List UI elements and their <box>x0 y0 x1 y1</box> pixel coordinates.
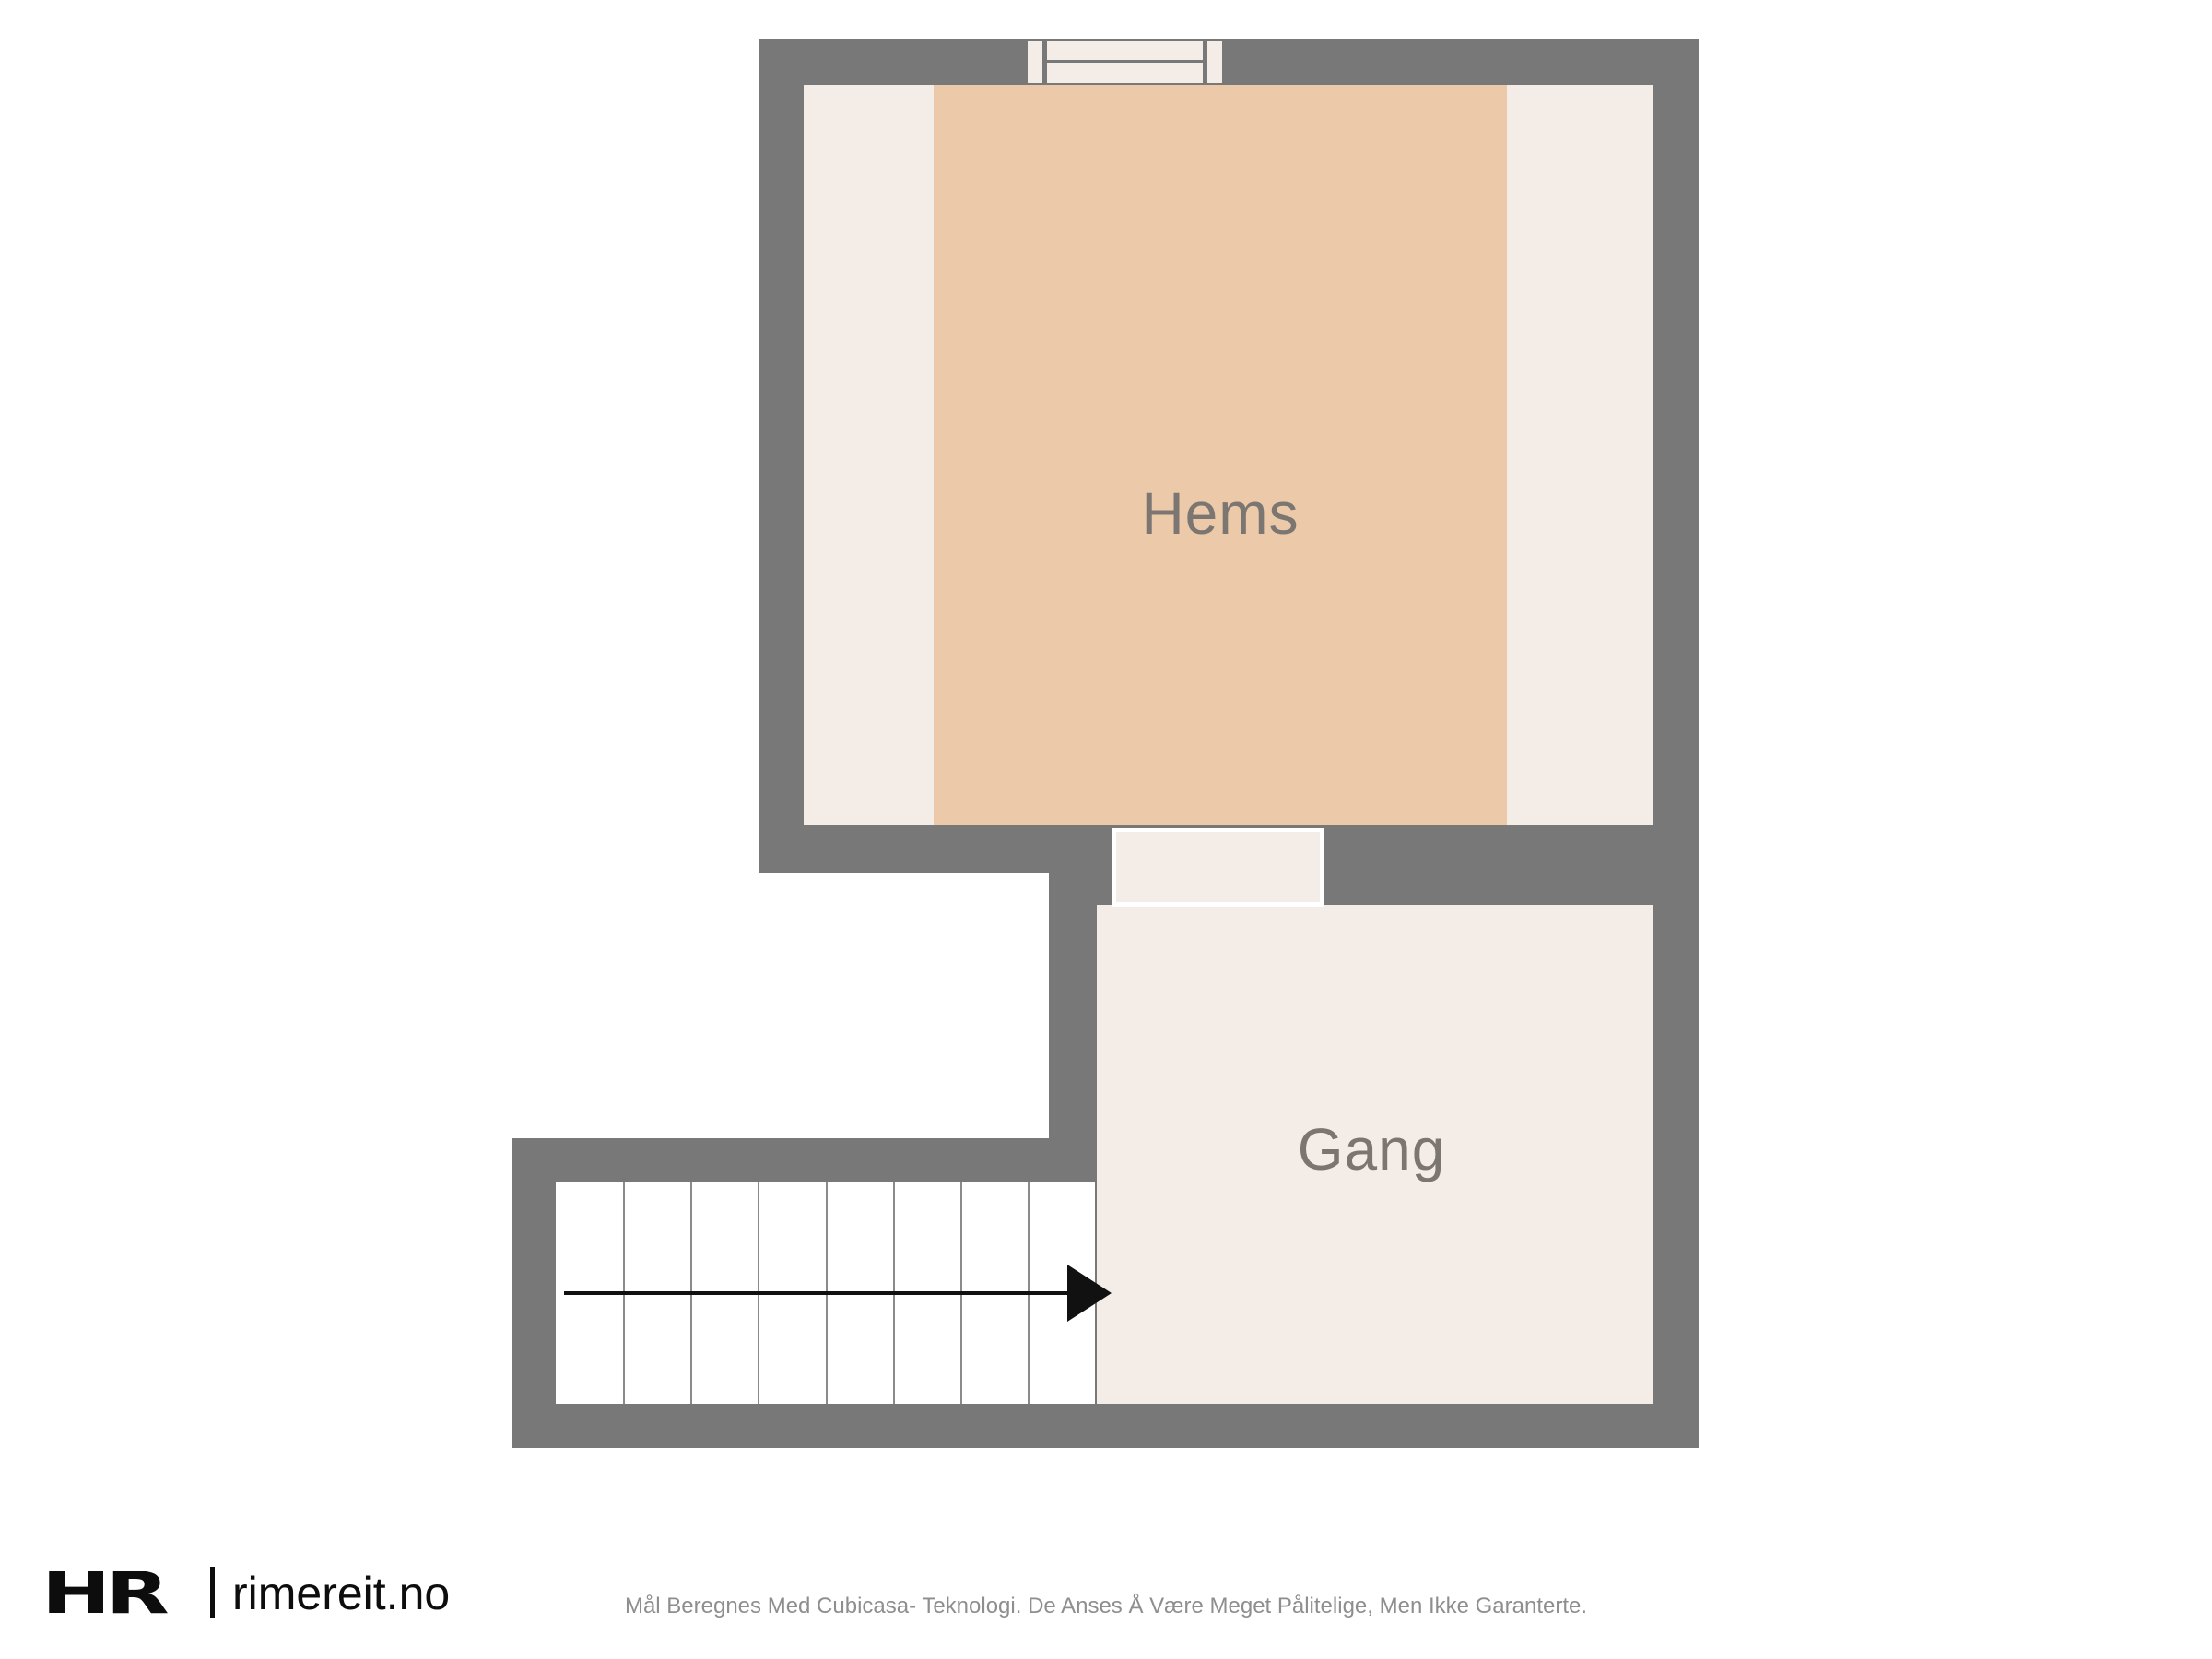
room-label-gang: Gang <box>1095 1111 1648 1188</box>
arrow-head-icon <box>1067 1265 1112 1322</box>
window-icon <box>1026 39 1224 85</box>
room-hems-accent-area <box>934 85 1507 825</box>
stairs-direction-arrow <box>564 1291 1069 1295</box>
door-opening <box>1112 828 1324 907</box>
disclaimer-text: Mål Beregnes Med Cubicasa- Teknologi. De… <box>0 1594 2212 1619</box>
window-frame-right <box>1203 41 1207 83</box>
window-pane-divider <box>1047 60 1203 63</box>
room-label-hems: Hems <box>944 475 1497 552</box>
